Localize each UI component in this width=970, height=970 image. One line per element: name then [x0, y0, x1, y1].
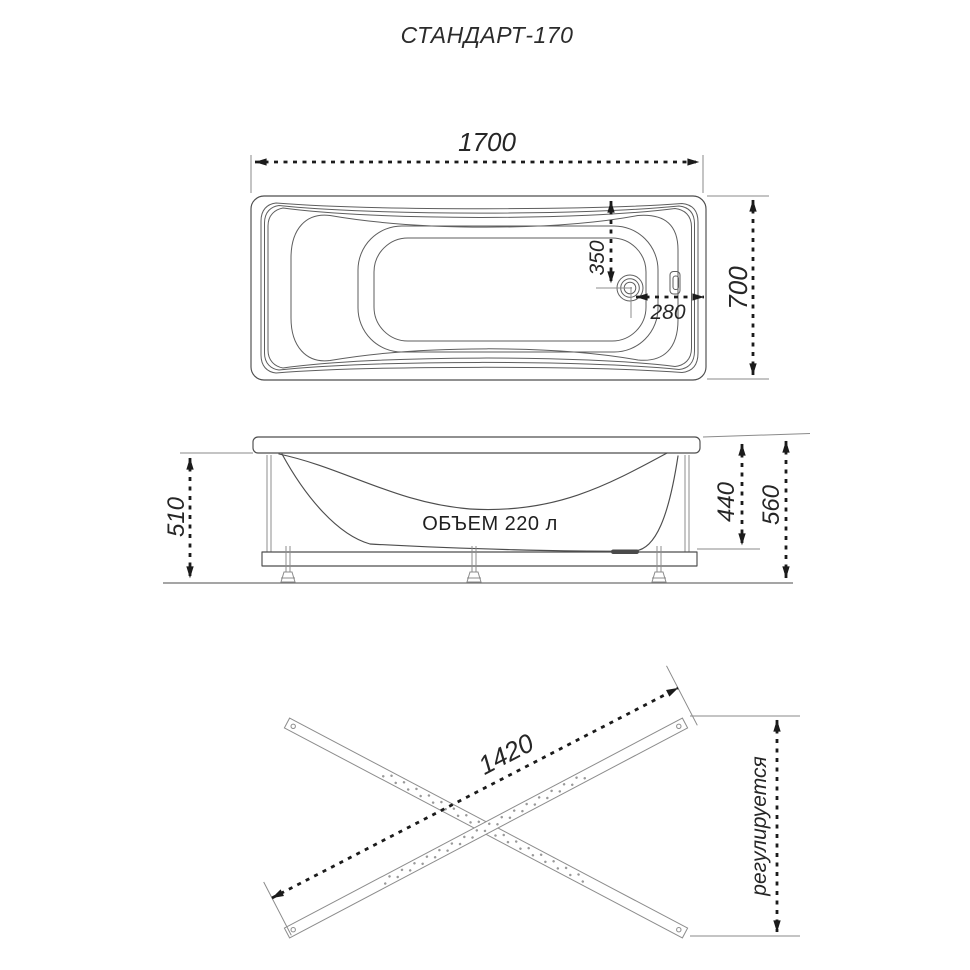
dim-1420-label: 1420 [473, 727, 539, 781]
dim-510-label: 510 [163, 496, 190, 537]
page-title: СТАНДАРТ-170 [401, 22, 574, 48]
dim-350-label: 350 [586, 240, 609, 275]
dim-560-label: 560 [758, 484, 785, 525]
dim-height-440: 440 [713, 444, 742, 545]
volume-label: ОБЪЕМ 220 л [422, 513, 558, 535]
frame-rails-view: 1420 регулируется [264, 666, 800, 938]
dim-700-label: 700 [723, 266, 753, 310]
drain-fitting-side [611, 550, 639, 555]
dim-width-700: 700 [707, 196, 769, 379]
frame-beam [262, 552, 697, 566]
dim-1700-label: 1700 [458, 127, 516, 157]
tub-bowl-profile [279, 453, 678, 551]
dim-rail-1420: 1420 [264, 666, 698, 936]
bathtub-technical-drawing: СТАНДАРТ-170 1700 [0, 0, 970, 970]
tub-rim-side [253, 437, 700, 453]
drawing-canvas: СТАНДАРТ-170 1700 [0, 0, 970, 970]
dim-length-1700: 1700 [251, 127, 703, 193]
dim-height-510: 510 [163, 458, 190, 578]
dim-440-label: 440 [713, 481, 740, 522]
drain [596, 275, 643, 318]
side-view: ОБЪЕМ 220 л 510 440 560 [163, 434, 810, 584]
dim-height-560: 560 [758, 441, 786, 578]
tub-outline-top [251, 196, 706, 380]
top-view: 1700 350 [251, 127, 769, 380]
adjustable-label: регулируется [748, 756, 771, 896]
dim-280-label: 280 [649, 301, 685, 324]
dim-drain-350: 350 [586, 201, 611, 283]
dim-adjustable-height: регулируется [690, 716, 800, 936]
